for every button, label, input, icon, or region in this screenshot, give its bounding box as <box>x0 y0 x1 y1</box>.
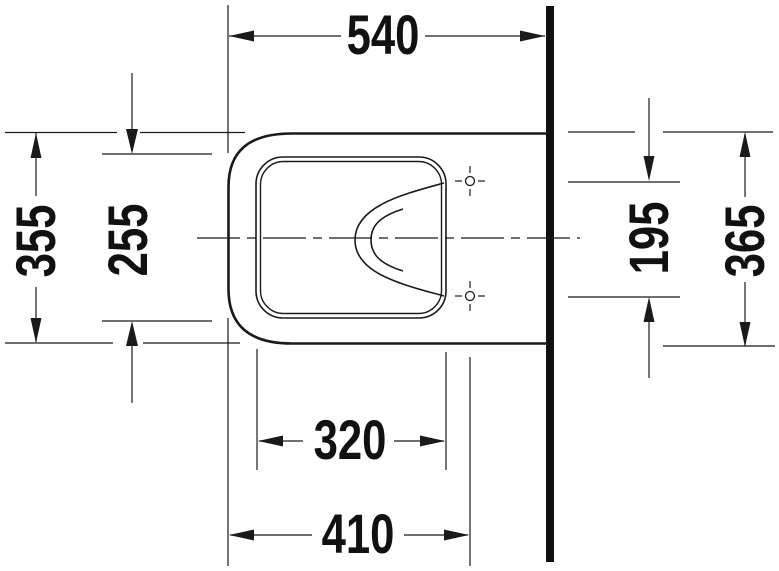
arrowhead-up <box>740 132 751 157</box>
mounting-hole-upper <box>455 166 485 196</box>
mounting-hole-lower-circle <box>466 292 475 301</box>
dimension-195-label: 195 <box>618 202 680 275</box>
drawing-sheet: 540 355 255 195 365 320 <box>0 0 779 571</box>
arrowhead-down <box>644 156 655 181</box>
technical-drawing: 540 355 255 195 365 320 <box>0 0 779 571</box>
dimension-540-label: 540 <box>347 4 420 66</box>
arrowhead-up <box>31 133 42 158</box>
wall-line <box>546 6 554 562</box>
dimension-195: 195 <box>618 98 680 378</box>
dimension-355: 355 <box>5 133 67 343</box>
dimension-540: 540 <box>229 4 545 66</box>
dimension-365-label: 365 <box>714 205 776 278</box>
dimension-255-label: 255 <box>97 204 159 277</box>
arrowhead-right <box>420 436 445 447</box>
arrowhead-left <box>229 530 254 541</box>
dimension-355-label: 355 <box>5 205 67 278</box>
dimension-320-label: 320 <box>314 409 387 471</box>
arrowhead-right <box>444 530 469 541</box>
arrowhead-up <box>644 297 655 322</box>
dimension-365: 365 <box>714 132 776 347</box>
dimension-320: 320 <box>258 409 445 471</box>
arrowhead-left <box>258 436 283 447</box>
mounting-hole-lower <box>455 281 485 311</box>
bowl-water-arc <box>371 209 403 271</box>
dimension-410-label: 410 <box>322 503 395 565</box>
bowl-sump-outline <box>355 183 444 296</box>
arrowhead-left <box>229 31 254 42</box>
arrowhead-down <box>31 318 42 343</box>
arrowhead-down <box>126 129 138 154</box>
extension-lines <box>5 5 775 566</box>
arrowhead-up <box>126 321 138 346</box>
arrowhead-down <box>740 322 751 347</box>
mounting-hole-upper-circle <box>466 177 475 186</box>
dimension-410: 410 <box>229 503 469 565</box>
arrowhead-right <box>520 31 545 42</box>
dimension-255: 255 <box>97 73 159 403</box>
